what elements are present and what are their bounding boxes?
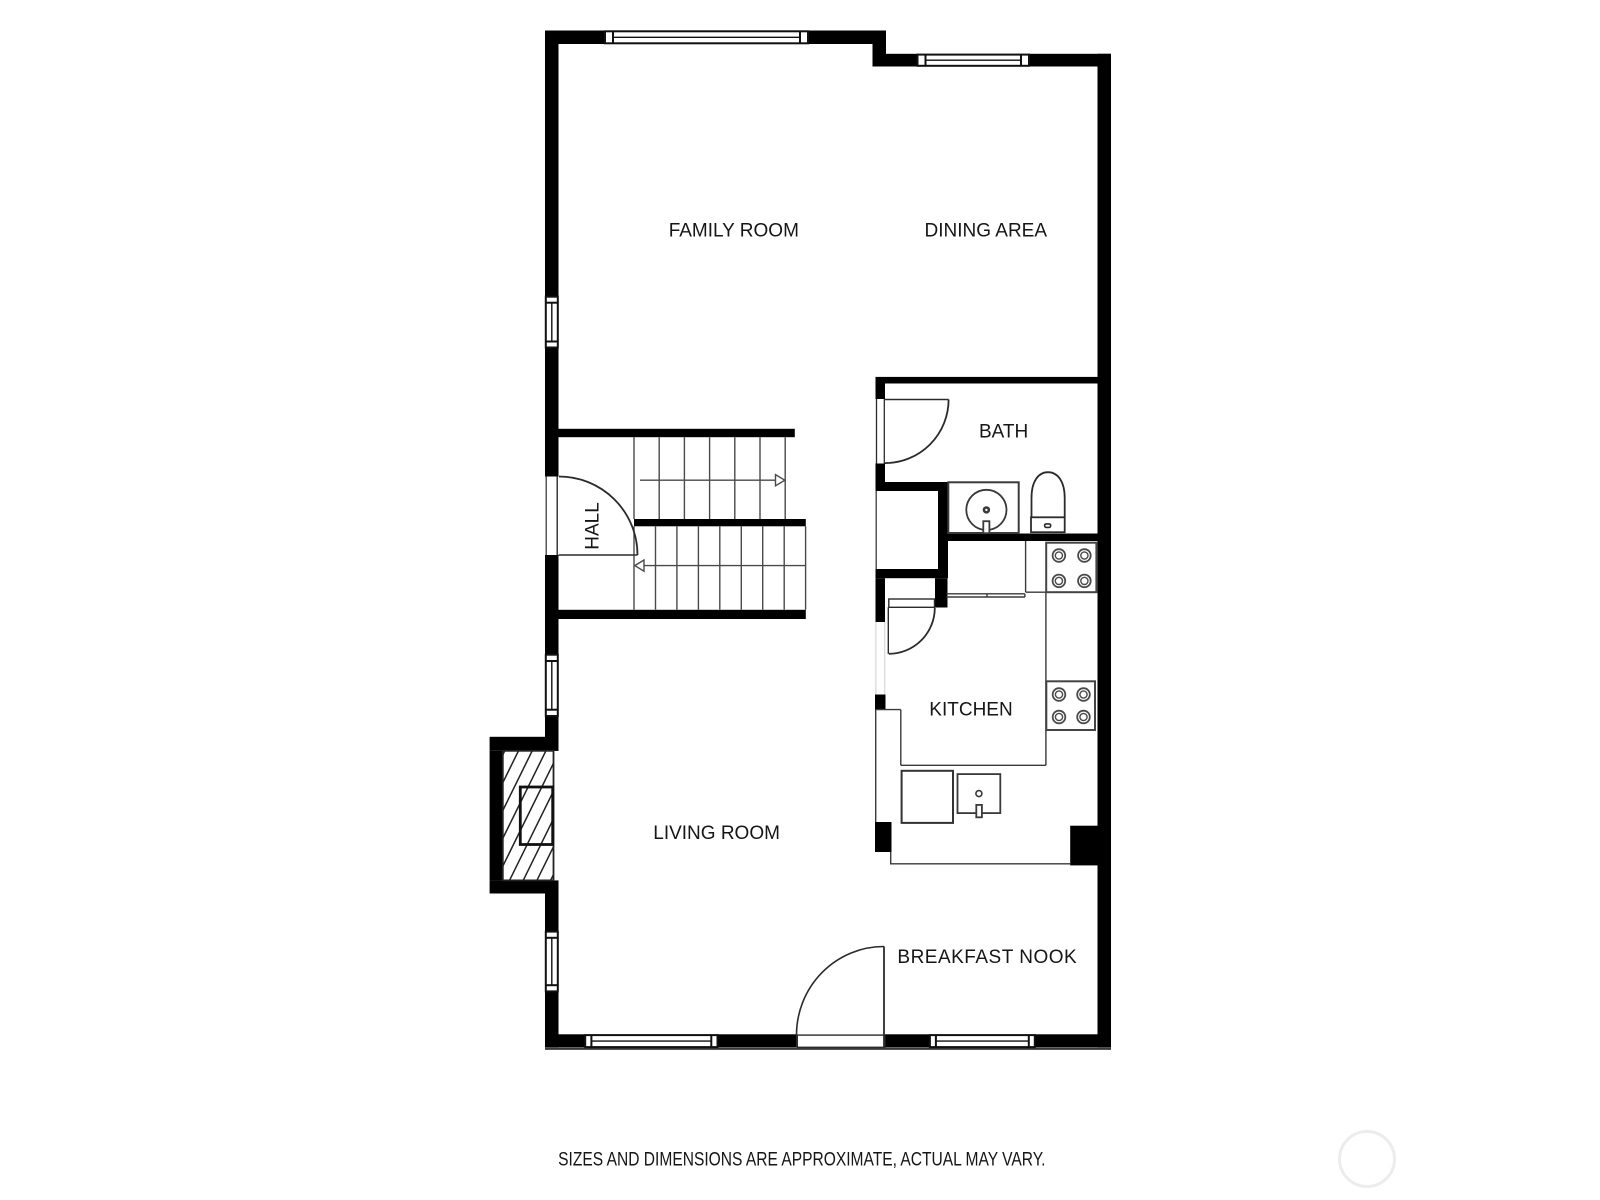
svg-text:KITCHEN: KITCHEN <box>929 700 1012 721</box>
svg-text:BATH: BATH <box>979 421 1028 442</box>
svg-text:SIZES AND DIMENSIONS ARE APPRO: SIZES AND DIMENSIONS ARE APPROXIMATE, AC… <box>558 1148 1045 1170</box>
svg-text:DINING AREA: DINING AREA <box>925 220 1048 241</box>
svg-text:FAMILY ROOM: FAMILY ROOM <box>669 220 799 241</box>
svg-text:HALL: HALL <box>583 502 604 550</box>
svg-text:LIVING ROOM: LIVING ROOM <box>653 823 780 844</box>
svg-text:BREAKFAST NOOK: BREAKFAST NOOK <box>897 947 1077 968</box>
